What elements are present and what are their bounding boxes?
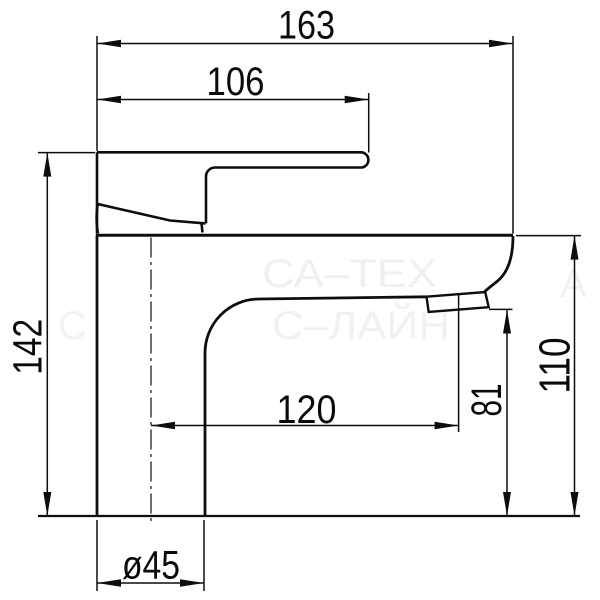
svg-text:120: 120 bbox=[277, 388, 337, 432]
svg-text:С–ЛАЙН: С–ЛАЙН bbox=[272, 302, 450, 348]
svg-text:С: С bbox=[58, 304, 87, 348]
svg-text:163: 163 bbox=[278, 4, 335, 48]
svg-text:А: А bbox=[560, 262, 587, 306]
svg-text:142: 142 bbox=[5, 319, 51, 375]
svg-text:СА–ТЕХ: СА–ТЕХ bbox=[262, 252, 437, 296]
svg-text:106: 106 bbox=[207, 60, 265, 104]
svg-text:110: 110 bbox=[531, 338, 580, 394]
svg-text:ø45: ø45 bbox=[122, 544, 180, 588]
svg-text:81: 81 bbox=[463, 384, 511, 417]
